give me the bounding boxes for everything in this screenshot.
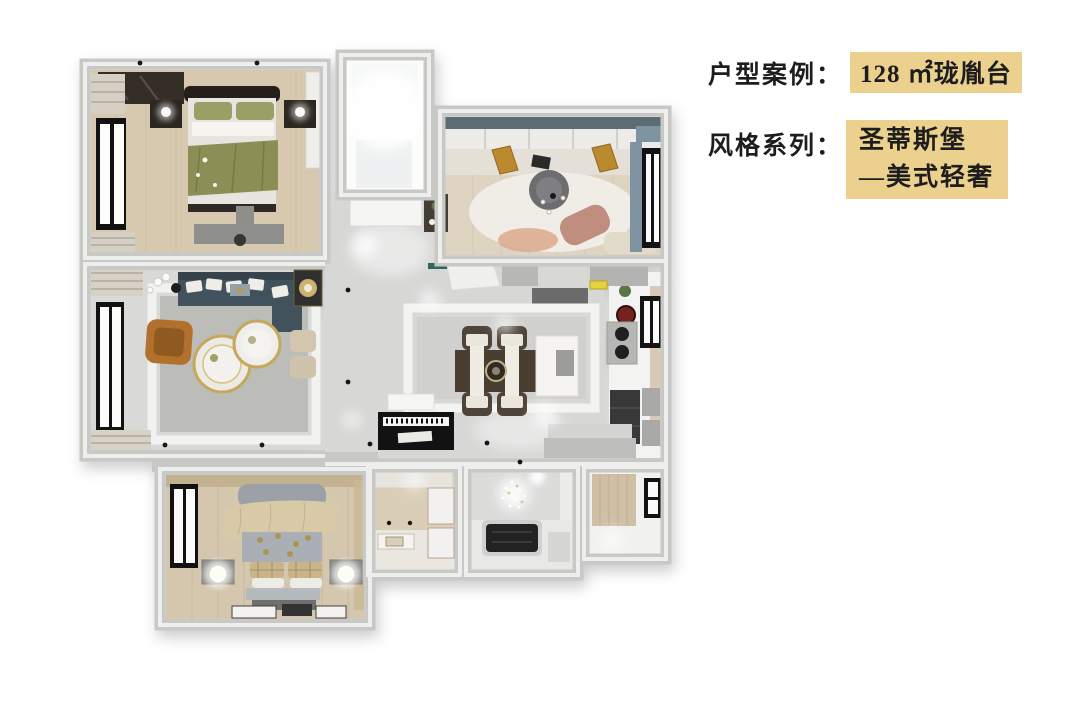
style-value-line2: —美式轻奢 <box>859 162 994 193</box>
window <box>170 484 198 568</box>
plant <box>619 285 631 297</box>
closet <box>428 528 454 558</box>
window <box>642 148 662 248</box>
island-counter <box>536 336 578 396</box>
closet <box>428 488 454 524</box>
leather-armchair <box>145 319 194 366</box>
wall-clock <box>617 306 635 324</box>
ottoman <box>290 330 316 352</box>
master-bedroom <box>91 70 320 252</box>
window <box>96 302 124 432</box>
ball-lamp <box>209 565 227 583</box>
wood-panel <box>592 474 636 526</box>
case-annotation: 户型案例： 128 ㎡珑胤台 <box>708 52 1022 93</box>
window <box>96 118 126 230</box>
case-label: 户型案例： <box>708 55 843 91</box>
range-hood <box>532 288 588 304</box>
bathtub <box>482 520 542 556</box>
utility-room <box>589 472 661 554</box>
bright-room <box>345 60 425 190</box>
floor-plan-rendering <box>0 0 1080 703</box>
page: 户型案例： 128 ㎡珑胤台 风格系列： 圣蒂斯堡 —美式轻奢 <box>0 0 1080 703</box>
cabinet-top <box>445 117 661 129</box>
style-value-line1: 圣蒂斯堡 <box>859 125 994 156</box>
curtain <box>630 142 642 252</box>
style-value-highlight: 圣蒂斯堡 —美式轻奢 <box>846 120 1008 199</box>
cooktop <box>607 322 637 364</box>
living-room <box>91 266 322 450</box>
window <box>640 296 661 348</box>
dining-set <box>455 326 539 416</box>
study-room <box>445 117 662 255</box>
window <box>644 478 661 518</box>
case-value-highlight: 128 ㎡珑胤台 <box>850 52 1022 93</box>
style-label: 风格系列： <box>708 126 843 162</box>
console <box>350 198 422 226</box>
wardrobe-room <box>373 470 455 570</box>
ball-lamp <box>337 565 355 583</box>
second-bedroom <box>166 475 364 619</box>
bathroom <box>471 469 573 570</box>
bed <box>184 86 280 224</box>
ottoman <box>290 356 316 378</box>
